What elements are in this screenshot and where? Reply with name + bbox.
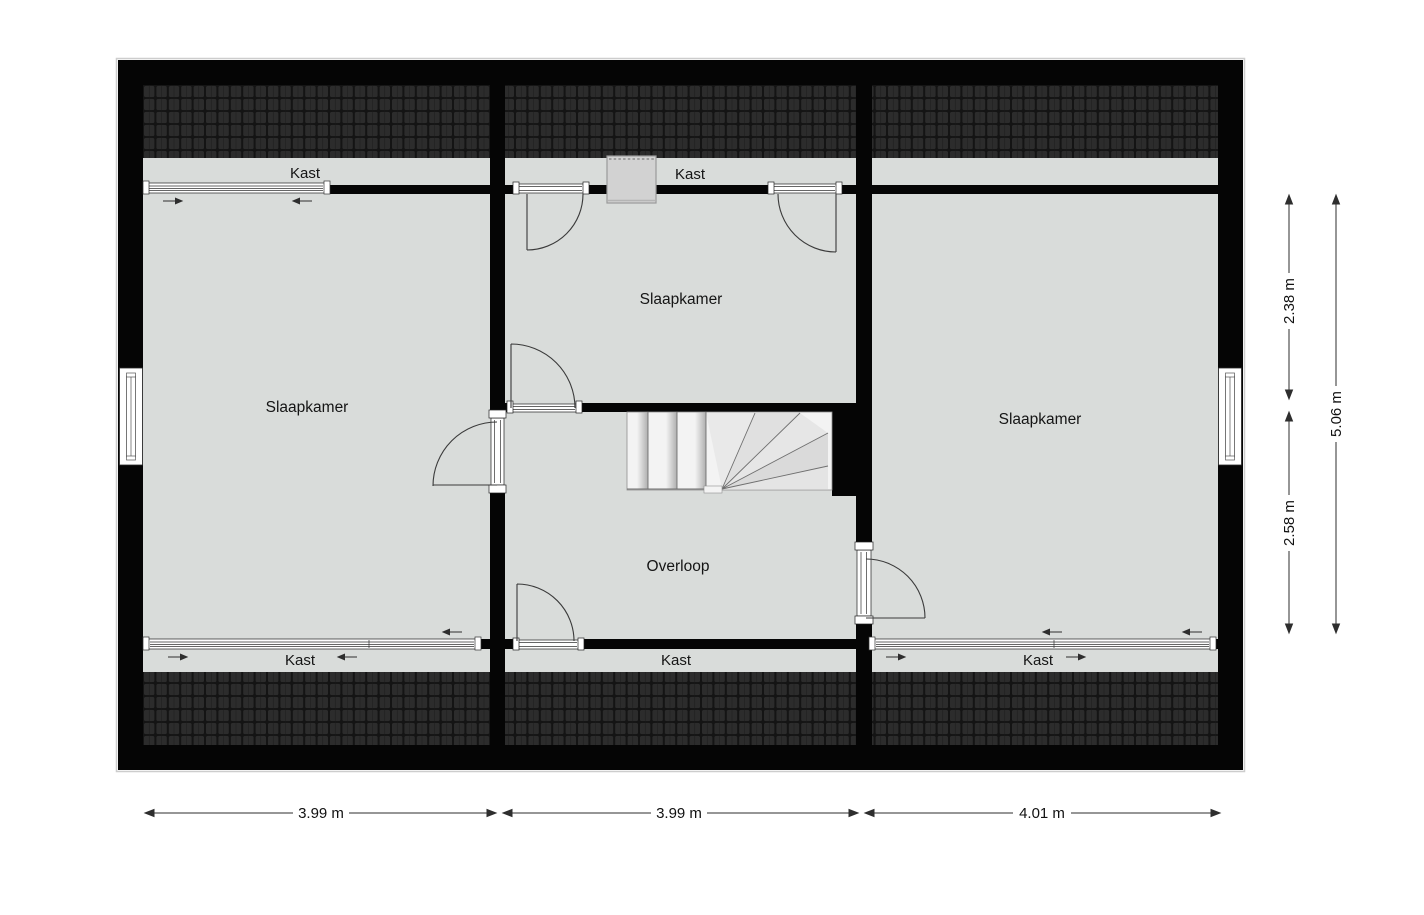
sliding-door-top-left bbox=[143, 181, 330, 194]
dimension-bottom-right: 4.01 m bbox=[1019, 805, 1065, 822]
roof-slope-top bbox=[143, 85, 1218, 158]
wall-stair-block bbox=[832, 412, 856, 496]
window-left bbox=[120, 368, 143, 465]
wall-left-vertical-lower bbox=[490, 487, 505, 745]
dimension-right-upper: 2.38 m bbox=[1281, 278, 1298, 324]
staircase bbox=[627, 412, 832, 493]
dimension-bottom-left: 3.99 m bbox=[298, 805, 344, 822]
roof-slope-bottom bbox=[143, 672, 1218, 745]
closet-label-bottom-right: Kast bbox=[1023, 652, 1054, 669]
floorplan-page: Slaapkamer Slaapkamer Slaapkamer Overloo… bbox=[0, 0, 1424, 915]
closet-label-bottom-left: Kast bbox=[285, 652, 316, 669]
room-label-overloop: Overloop bbox=[647, 558, 710, 575]
sliding-door-bottom-right bbox=[869, 637, 1216, 650]
chimney bbox=[607, 156, 656, 203]
dimension-bottom-middle: 3.99 m bbox=[656, 805, 702, 822]
wall-bottom-mid-b bbox=[584, 639, 856, 649]
dimension-right-lower: 2.58 m bbox=[1281, 500, 1298, 546]
room-label-slaapkamer-middle: Slaapkamer bbox=[640, 291, 723, 308]
room-label-slaapkamer-right: Slaapkamer bbox=[999, 411, 1082, 428]
wall-top-left bbox=[326, 185, 490, 194]
closet-label-top-middle: Kast bbox=[675, 166, 706, 183]
closet-label-top-left: Kast bbox=[290, 165, 321, 182]
room-label-slaapkamer-left: Slaapkamer bbox=[266, 399, 349, 416]
sliding-door-bottom-left bbox=[143, 637, 481, 650]
wall-left-vertical-upper bbox=[490, 85, 505, 417]
wall-right-vertical-upper bbox=[856, 85, 872, 548]
dimension-right-total: 5.06 m bbox=[1328, 391, 1345, 437]
closet-label-bottom-middle: Kast bbox=[661, 652, 692, 669]
floorplan-drawing: Slaapkamer Slaapkamer Slaapkamer Overloo… bbox=[0, 0, 1424, 915]
wall-top-right bbox=[872, 185, 1218, 194]
wall-midroom-bottom-b bbox=[579, 403, 856, 412]
window-right bbox=[1219, 368, 1242, 465]
